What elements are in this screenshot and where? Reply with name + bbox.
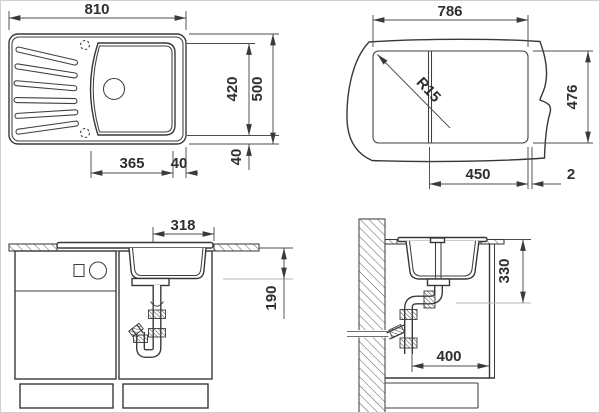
wall-section	[359, 219, 385, 413]
groove	[14, 81, 77, 91]
trap-nut	[149, 310, 166, 319]
groove	[14, 98, 77, 104]
dim-476: 476	[533, 51, 593, 143]
groove	[15, 64, 78, 79]
control-square	[74, 265, 84, 277]
dim-label-40-horizontal: 40	[171, 155, 188, 172]
pipe-nut	[424, 291, 435, 308]
plinth-right	[123, 384, 208, 408]
cutout-outline	[373, 51, 528, 143]
trap-nut	[149, 329, 166, 338]
bowl-profile	[129, 248, 206, 279]
sink-technical-drawing: 810 420 500 40 365 40	[1, 1, 600, 413]
dim-label-500: 500	[249, 76, 266, 101]
cabinet-left	[15, 251, 116, 379]
front-section-view: 318 190	[9, 217, 293, 408]
dim-label-190: 190	[263, 285, 280, 310]
dim-810: 810	[9, 1, 186, 30]
tap-hole-cap	[431, 238, 445, 243]
drain-flange	[428, 279, 450, 286]
dim-label-810: 810	[84, 1, 109, 18]
dim-400: 400	[412, 348, 489, 372]
pipe-nut	[400, 338, 417, 348]
worktop-hatch-left	[9, 244, 57, 251]
dim-190: 190	[223, 248, 293, 319]
pipe-nut	[400, 310, 417, 320]
dim-label-420: 420	[224, 76, 241, 101]
dim-label-40-vertical: 40	[228, 149, 245, 166]
sink-top-view: 810 420 500 40 365 40	[9, 1, 279, 178]
drain-pipework	[388, 285, 439, 354]
siphon-trap	[129, 285, 166, 354]
dim-label-476: 476	[564, 84, 581, 109]
tap-hole-top	[81, 41, 90, 50]
groove	[15, 110, 78, 119]
drawing-frame: 810 420 500 40 365 40	[0, 0, 600, 413]
tap-hole-bottom	[81, 129, 90, 138]
dim-450-2: 450 2	[430, 147, 576, 189]
dim-label-365: 365	[119, 155, 144, 172]
worktop-hatch-wall	[385, 240, 397, 245]
trap-nut	[134, 335, 148, 343]
drainboard-grooves	[14, 47, 79, 135]
dim-label-786: 786	[437, 3, 462, 20]
dim-label-318: 318	[170, 217, 195, 234]
dim-label-2: 2	[567, 166, 575, 183]
dim-label-r15: R15	[413, 74, 444, 106]
bowl-side-profile	[406, 241, 479, 279]
worktop-hatch-right	[214, 244, 259, 251]
dim-365-40: 365 40	[91, 147, 198, 178]
dim-label-400: 400	[436, 348, 461, 365]
dim-420-500-40: 420 500 40	[187, 34, 279, 170]
dim-label-330: 330	[496, 258, 513, 283]
pipe-collar	[389, 325, 404, 338]
dim-318: 318	[153, 217, 214, 242]
plinth-left	[20, 384, 113, 408]
groove	[15, 47, 78, 66]
dim-label-450: 450	[465, 166, 490, 183]
side-section-view: 330 400	[347, 219, 531, 413]
radius-callout: R15	[378, 55, 451, 129]
control-knob	[90, 262, 107, 279]
sink-rim-profile	[57, 243, 213, 249]
drain-housing	[132, 279, 169, 286]
groove	[16, 121, 79, 135]
worktop-cutout-view: R15 786 476 450 2	[347, 3, 593, 189]
